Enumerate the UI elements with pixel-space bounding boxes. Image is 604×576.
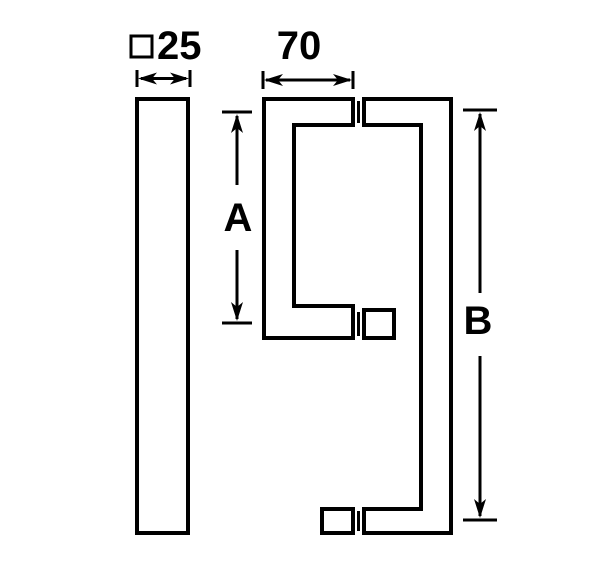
grip-width-dimension-value: 70 [277,24,322,68]
front-post-lower [322,509,353,533]
dimension-width-70: 70 [263,24,353,89]
rear-post-upper [364,310,394,338]
dimension-profile-25: 25 [131,24,202,87]
front-grip-outline [264,99,353,338]
spacing-b-label: B [464,299,493,343]
spacing-a-label: A [224,196,253,240]
side-profile-bar [137,99,188,533]
pull-handle-technical-drawing: 25 70 [0,0,604,576]
dimension-a: A [222,112,252,323]
technical-drawing-page: 25 70 [0,0,604,576]
square-profile-icon [131,36,152,57]
dimension-b: B [463,110,497,520]
profile-dimension-value: 25 [157,24,202,68]
